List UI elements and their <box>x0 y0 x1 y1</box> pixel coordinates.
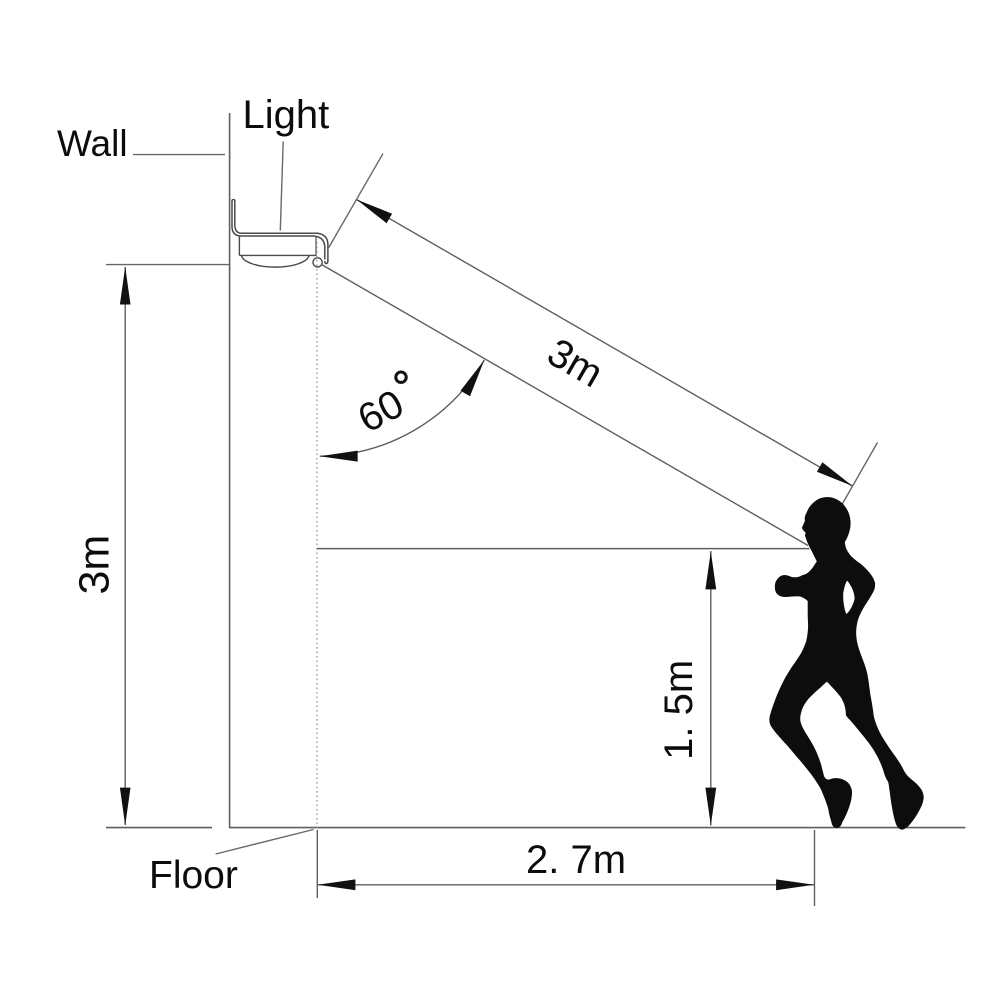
svg-text:Light: Light <box>243 93 330 137</box>
svg-text:Wall: Wall <box>57 123 128 164</box>
svg-text:Floor: Floor <box>149 854 238 897</box>
svg-text:2. 7m: 2. 7m <box>526 838 626 882</box>
svg-text:1. 5m: 1. 5m <box>657 660 701 760</box>
svg-text:3m: 3m <box>71 535 119 595</box>
